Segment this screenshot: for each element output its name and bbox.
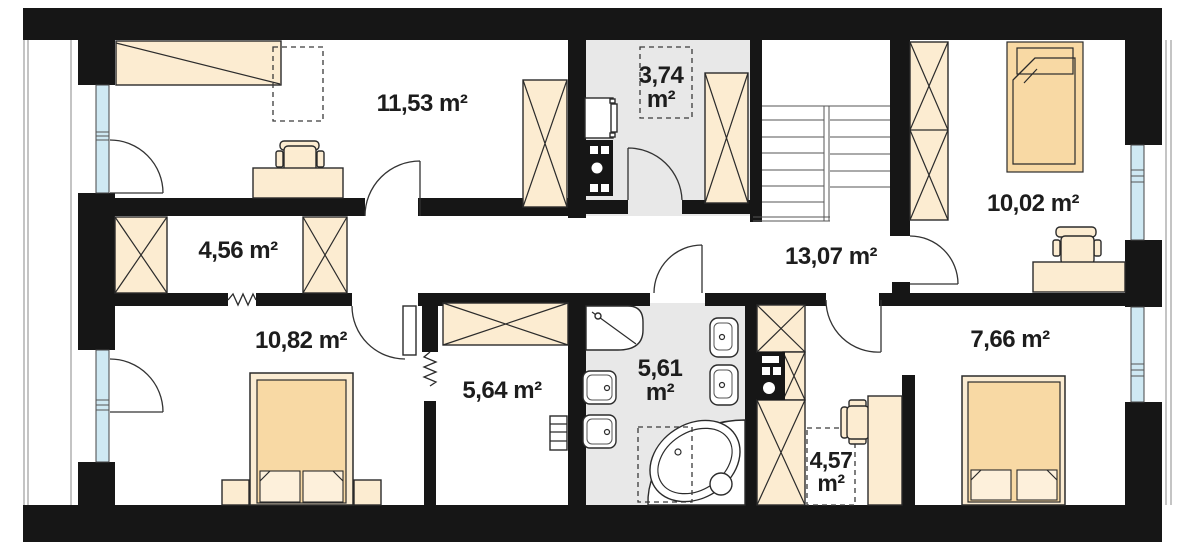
door-bedroom-top-right: [910, 236, 958, 284]
door-bedroom-bottom-left: [352, 306, 416, 359]
washbasin-east-1: [710, 318, 738, 357]
wall-break-corridor: [228, 294, 256, 305]
staircase: [753, 106, 890, 221]
wardrobe-by-stairs: [910, 42, 948, 220]
office-chair-top-right: [1053, 227, 1101, 264]
area-label-bedroom-top-right: 10,02 m²: [987, 190, 1079, 218]
chimney-flue-utility: [586, 140, 613, 196]
door-room-top-left: [365, 161, 420, 216]
washing-machine: [585, 98, 617, 138]
desk-top-right: [1033, 262, 1125, 292]
wardrobe-dressing: [443, 303, 568, 345]
nightstand-east: [354, 480, 381, 505]
area-label-bathroom: 5,61 m²: [638, 357, 683, 405]
balcony-door-bottom-left: [110, 359, 163, 412]
wardrobe-corridor-west: [115, 217, 167, 293]
area-label-bedroom-bottom-right: 7,66 m²: [970, 326, 1049, 354]
area-label-utility-room: 3,74 m²: [639, 64, 684, 112]
area-label-corridor: 4,56 m²: [198, 237, 277, 265]
area-label-bedroom-bottom-left: 10,82 m²: [255, 327, 347, 355]
area-value: 5,61: [638, 357, 683, 381]
area-unit: m²: [638, 381, 683, 405]
area-unit: m²: [810, 472, 853, 495]
area-label-room-top-left: 11,53 m²: [377, 90, 468, 118]
wardrobe-top-left: [523, 80, 567, 207]
washbasin-east-2: [710, 365, 738, 405]
area-label-alcove: 4,57 m²: [810, 449, 853, 495]
wardrobe-utility: [705, 73, 748, 203]
double-bed-bottom-left: [250, 373, 353, 505]
window-top-right: [1131, 145, 1144, 240]
desk-top-left: [253, 168, 343, 198]
area-value: 3,74: [639, 64, 684, 88]
single-bed: [1007, 42, 1083, 172]
wardrobe-column-south: [757, 305, 805, 505]
wall-break-dressing: [424, 352, 436, 386]
shelf-unit: [550, 416, 567, 450]
sloped-closet: [116, 41, 281, 85]
area-label-dressing-room: 5,64 m²: [462, 377, 541, 405]
double-bed-bottom-right: [962, 376, 1065, 505]
area-unit: m²: [639, 88, 684, 112]
window-top-left: [96, 85, 109, 193]
door-bathroom: [654, 245, 702, 293]
chimney-flue-south: [757, 352, 785, 400]
balcony-door-top-left: [110, 140, 163, 193]
window-bottom-left: [96, 350, 109, 462]
floor-plan-drawing: [0, 0, 1183, 550]
area-label-hall: 13,07 m²: [785, 243, 877, 271]
wardrobe-corridor-east: [303, 217, 347, 293]
area-value: 4,57: [810, 449, 853, 472]
nightstand-west: [222, 480, 249, 505]
window-bottom-right: [1131, 307, 1144, 402]
floor-plan: 11,53 m² 3,74 m² 4,56 m² 13,07 m² 10,02 …: [0, 0, 1183, 550]
washbasin-west-2: [583, 415, 616, 448]
desk-alcove: [868, 396, 902, 505]
office-chair-alcove: [841, 400, 869, 444]
washbasin-west-1: [583, 371, 616, 404]
shower: [586, 306, 643, 350]
door-bedroom-bottom-right: [826, 300, 881, 352]
